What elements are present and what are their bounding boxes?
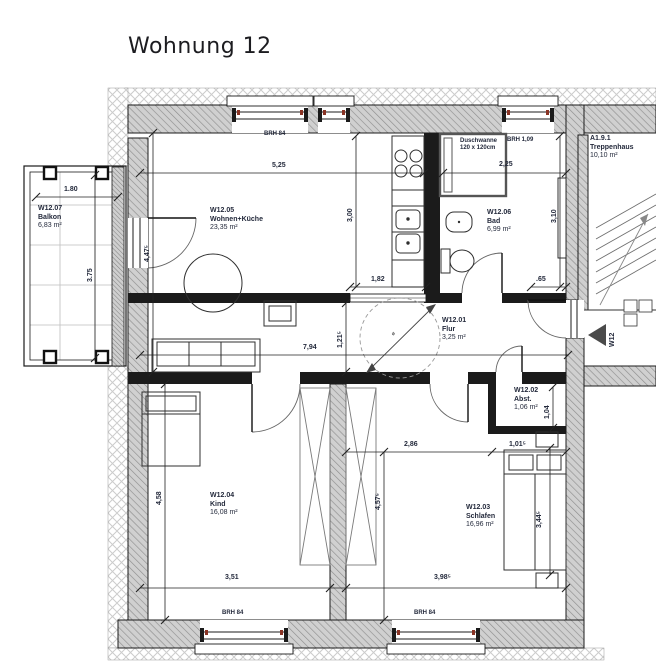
bathroom-fixtures bbox=[440, 134, 506, 273]
dim-kueche-height: 3,00 bbox=[347, 208, 354, 222]
dim-balkon-width: 1.80 bbox=[64, 186, 78, 193]
room-id: W12.06 bbox=[487, 209, 511, 218]
kind-furniture bbox=[142, 392, 200, 466]
dim-kind-height: 4,58 bbox=[156, 491, 163, 505]
room-id: W12.01 bbox=[442, 317, 466, 326]
room-label-treppenhaus: A1.9.1 Treppenhaus 10,10 m² bbox=[590, 135, 634, 161]
entrance-arrow-icon bbox=[588, 324, 606, 346]
dim-schlafen-depth: 4,57⁵ bbox=[375, 493, 382, 510]
schlafen-furniture bbox=[504, 432, 566, 588]
interior-walls bbox=[128, 133, 566, 434]
window-sill-label-top: BRH 84 bbox=[264, 131, 285, 138]
room-id: W12.02 bbox=[514, 387, 538, 396]
stairs bbox=[584, 194, 656, 326]
room-label-kind: W12.04 Kind 16,08 m² bbox=[210, 492, 238, 518]
room-name: Treppenhaus bbox=[590, 144, 634, 153]
shower-annotation: Duschwanne 120 x 120cm bbox=[460, 138, 497, 152]
room-area: 6,83 m² bbox=[38, 222, 62, 231]
living-furniture bbox=[152, 254, 296, 372]
room-area: 10,10 m² bbox=[590, 152, 634, 161]
dim-flur-height: 1,21⁵ bbox=[337, 331, 344, 348]
window-sill-label-bottom-right: BRH 84 bbox=[414, 610, 435, 617]
room-name: Wohnen+Küche bbox=[210, 216, 263, 225]
turning-circle bbox=[360, 298, 440, 378]
dim-bad-height: 3,10 bbox=[551, 209, 558, 223]
floor-plan: Wohnung 12 W12.07 Balkon 6,83 m² W12.05 … bbox=[0, 0, 656, 664]
room-name: Abst. bbox=[514, 396, 538, 405]
dim-abst-height: 1,04 bbox=[544, 405, 551, 419]
dim-wohnen-height: 4,47⁵ bbox=[144, 245, 151, 262]
room-label-abstellraum: W12.02 Abst. 1,06 m² bbox=[514, 387, 538, 413]
window-sill-label-bad: BRH 1,09 bbox=[507, 137, 533, 144]
dim-mid-width: 2,86 bbox=[404, 441, 418, 448]
dim-bad-rest: .65 bbox=[536, 276, 546, 283]
kitchen-unit bbox=[392, 136, 424, 287]
room-area: 23,35 m² bbox=[210, 224, 263, 233]
room-area: 16,08 m² bbox=[210, 509, 238, 518]
floor-plan-drawing bbox=[0, 0, 656, 664]
dim-balkon-height: 3.75 bbox=[87, 268, 94, 282]
room-id: A1.9.1 bbox=[590, 135, 634, 144]
room-name: Kind bbox=[210, 501, 238, 510]
room-id: W12.05 bbox=[210, 207, 263, 216]
shower-annotation-line1: Duschwanne bbox=[460, 138, 497, 145]
dim-schlafen-width: 3,98⁵ bbox=[434, 574, 451, 581]
balcony bbox=[24, 166, 126, 366]
entrance-marker-label: W12 bbox=[609, 333, 616, 347]
room-area: 1,06 m² bbox=[514, 404, 538, 413]
room-area: 16,96 m² bbox=[466, 521, 495, 530]
dim-bett: 3,44⁵ bbox=[536, 511, 543, 528]
dim-flur-width: 7,94 bbox=[303, 344, 317, 351]
room-label-bad: W12.06 Bad 6,99 m² bbox=[487, 209, 511, 235]
dim-abst-width: 1,01⁵ bbox=[509, 441, 526, 448]
wc bbox=[441, 249, 450, 273]
room-label-flur: W12.01 Flur 3,25 m² bbox=[442, 317, 466, 343]
room-label-schlafen: W12.03 Schlafen 16,96 m² bbox=[466, 504, 495, 530]
room-name: Bad bbox=[487, 218, 511, 227]
doors bbox=[148, 218, 566, 432]
room-label-wohnen-kueche: W12.05 Wohnen+Küche 23,35 m² bbox=[210, 207, 263, 233]
room-area: 6,99 m² bbox=[487, 226, 511, 235]
sofa bbox=[152, 339, 260, 372]
room-name: Balkon bbox=[38, 214, 62, 223]
round-table bbox=[184, 254, 242, 312]
shower-annotation-line2: 120 x 120cm bbox=[460, 145, 497, 152]
room-area: 3,25 m² bbox=[442, 334, 466, 343]
dim-kueche-width: 1,82 bbox=[371, 276, 385, 283]
room-id: W12.07 bbox=[38, 205, 62, 214]
window-sill-label-bottom-left: BRH 84 bbox=[222, 610, 243, 617]
dim-wohnen-width: 5,25 bbox=[272, 162, 286, 169]
dim-bad-width: 2,25 bbox=[499, 161, 513, 168]
page-title: Wohnung 12 bbox=[128, 34, 272, 59]
room-label-balkon: W12.07 Balkon 6,83 m² bbox=[38, 205, 62, 231]
room-name: Schlafen bbox=[466, 513, 495, 522]
dim-kind-width: 3,51 bbox=[225, 574, 239, 581]
room-id: W12.04 bbox=[210, 492, 238, 501]
room-name: Flur bbox=[442, 326, 466, 335]
room-id: W12.03 bbox=[466, 504, 495, 513]
single-bed bbox=[142, 392, 200, 466]
